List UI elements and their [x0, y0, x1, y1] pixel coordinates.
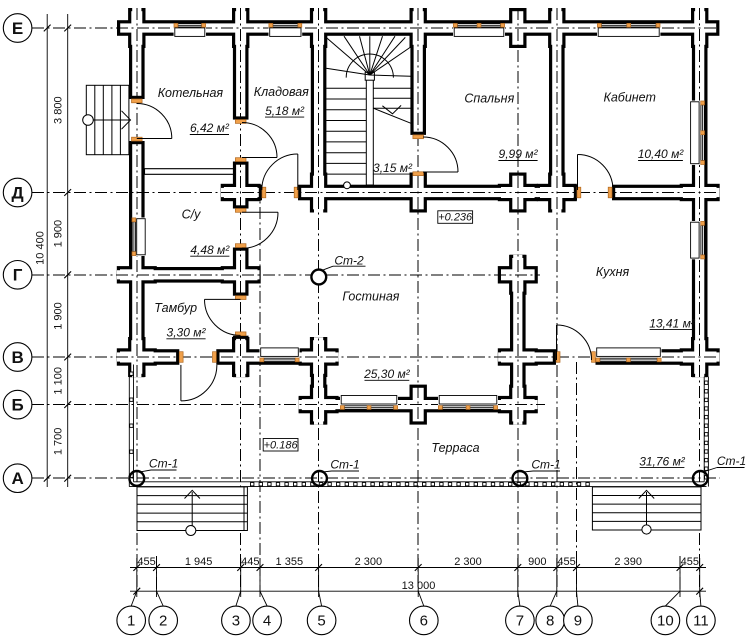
- svg-text:С/у: С/у: [182, 207, 202, 221]
- svg-text:455: 455: [681, 556, 699, 568]
- svg-text:1 900: 1 900: [53, 302, 65, 330]
- svg-text:Ст-1: Ст-1: [330, 457, 359, 471]
- svg-text:7: 7: [516, 613, 524, 630]
- svg-text:Гостиная: Гостиная: [342, 290, 399, 304]
- svg-text:2 300: 2 300: [355, 556, 383, 568]
- svg-text:+0.236: +0.236: [438, 212, 473, 224]
- svg-text:2: 2: [159, 613, 167, 630]
- svg-text:445: 445: [241, 556, 259, 568]
- svg-text:Ст-1: Ст-1: [717, 454, 746, 468]
- svg-text:Е: Е: [12, 19, 23, 38]
- svg-text:Д: Д: [12, 183, 24, 202]
- svg-text:1 100: 1 100: [53, 367, 65, 395]
- svg-text:5: 5: [317, 613, 325, 630]
- svg-text:3 800: 3 800: [53, 96, 65, 124]
- svg-text:455: 455: [137, 556, 155, 568]
- svg-text:900: 900: [528, 556, 546, 568]
- svg-text:+0.186: +0.186: [264, 439, 299, 451]
- svg-text:Котельная: Котельная: [158, 86, 224, 100]
- svg-text:10: 10: [657, 613, 674, 630]
- svg-text:1 945: 1 945: [185, 556, 213, 568]
- svg-text:4: 4: [263, 613, 271, 630]
- svg-text:25,30 м²: 25,30 м²: [363, 367, 411, 381]
- svg-text:Терраса: Терраса: [431, 441, 479, 455]
- svg-text:Г: Г: [13, 266, 23, 285]
- svg-text:3,15 м²: 3,15 м²: [373, 161, 413, 175]
- svg-text:Спальня: Спальня: [464, 92, 514, 106]
- svg-text:1 900: 1 900: [53, 220, 65, 248]
- svg-text:Кухня: Кухня: [596, 265, 630, 279]
- svg-text:В: В: [11, 348, 23, 367]
- svg-text:5,18 м²: 5,18 м²: [265, 104, 305, 118]
- svg-text:Ст-1: Ст-1: [149, 456, 178, 470]
- svg-text:1: 1: [127, 613, 135, 630]
- svg-text:Тамбур: Тамбур: [154, 301, 197, 315]
- svg-text:13 000: 13 000: [402, 580, 436, 592]
- svg-text:А: А: [11, 469, 23, 488]
- svg-text:10 400: 10 400: [35, 231, 47, 265]
- svg-text:9,99 м²: 9,99 м²: [499, 147, 539, 161]
- svg-text:3: 3: [232, 613, 240, 630]
- svg-text:8: 8: [546, 613, 554, 630]
- svg-text:Б: Б: [11, 395, 23, 414]
- svg-text:Ст-1: Ст-1: [531, 457, 560, 471]
- svg-text:2 300: 2 300: [454, 556, 482, 568]
- svg-text:4,48 м²: 4,48 м²: [190, 243, 230, 257]
- svg-text:Кабинет: Кабинет: [603, 90, 655, 104]
- svg-text:10,40 м²: 10,40 м²: [638, 147, 685, 161]
- svg-text:Ст-2: Ст-2: [334, 253, 364, 267]
- svg-text:1 700: 1 700: [53, 428, 65, 456]
- svg-text:455: 455: [557, 556, 575, 568]
- svg-text:2 390: 2 390: [614, 556, 642, 568]
- svg-text:11: 11: [693, 613, 709, 630]
- svg-text:1 355: 1 355: [276, 556, 304, 568]
- svg-text:31,76 м²: 31,76 м²: [639, 454, 686, 468]
- svg-text:6,42 м²: 6,42 м²: [190, 121, 230, 135]
- svg-text:Кладовая: Кладовая: [254, 85, 309, 99]
- svg-text:9: 9: [574, 613, 582, 630]
- svg-text:13,41 м²: 13,41 м²: [649, 316, 696, 330]
- svg-text:3,30 м²: 3,30 м²: [167, 326, 207, 340]
- svg-text:6: 6: [420, 613, 428, 630]
